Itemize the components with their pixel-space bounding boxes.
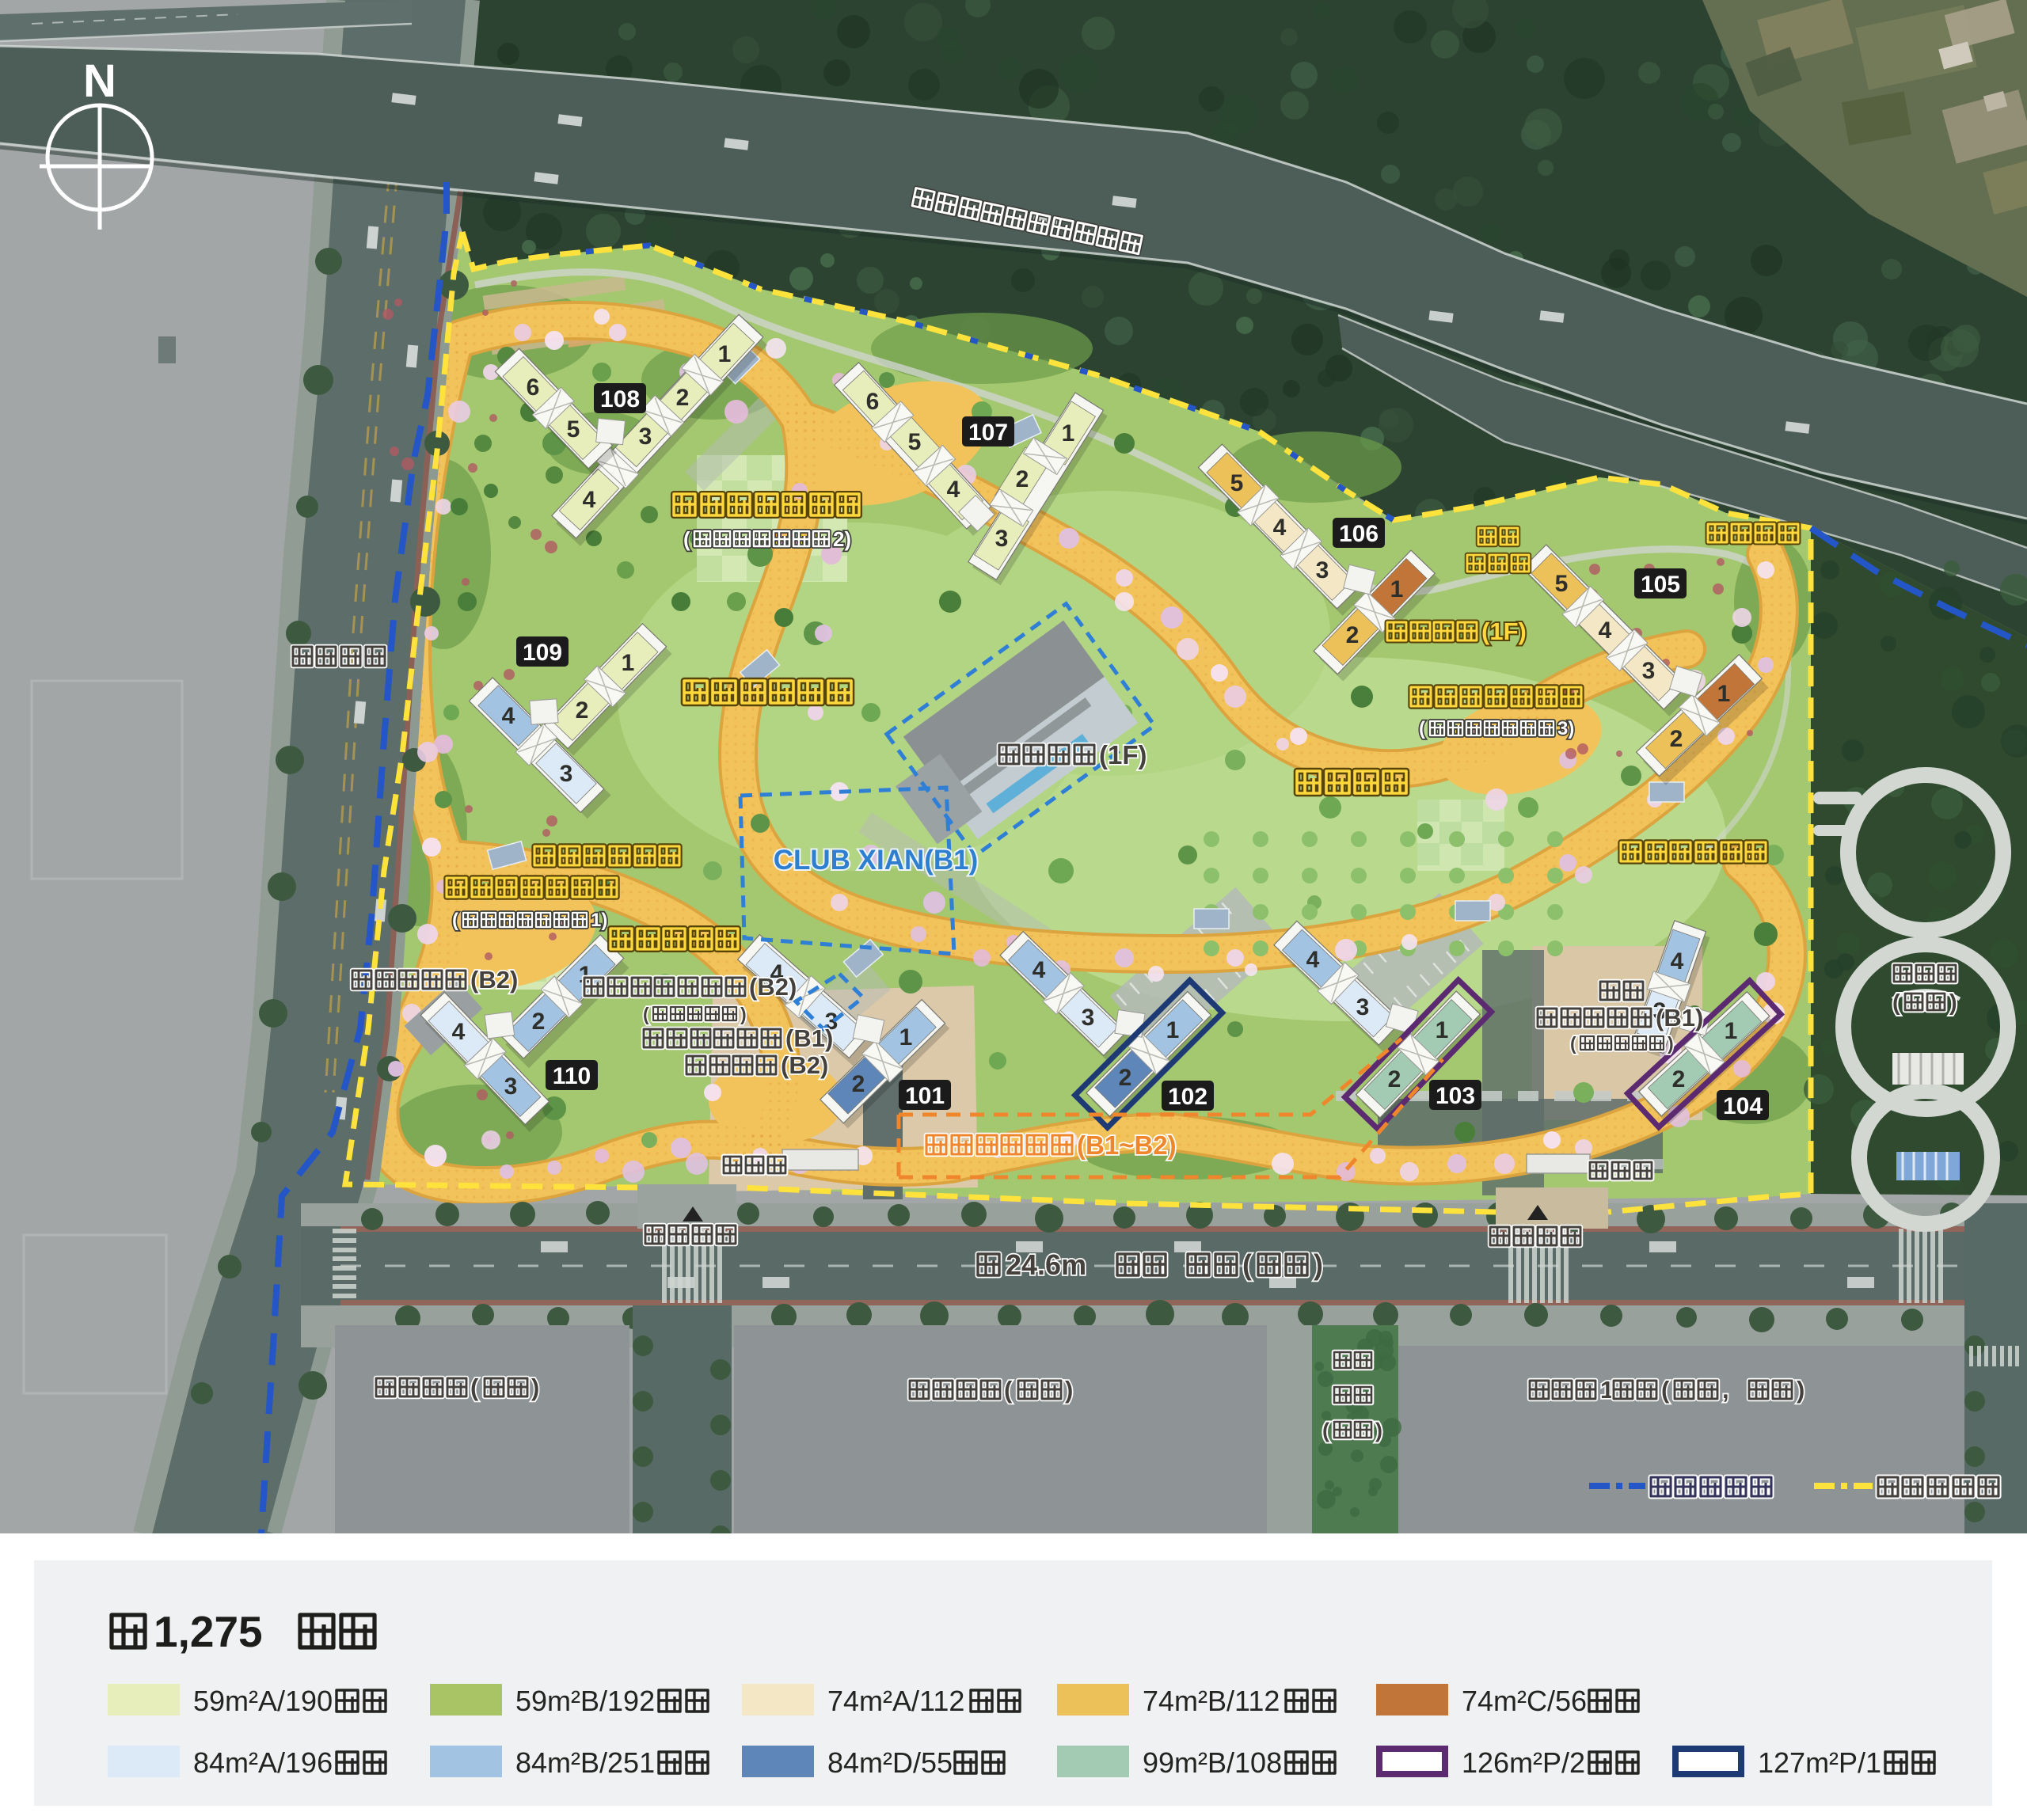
svg-text:84m²A/196: 84m²A/196 [193, 1746, 333, 1779]
svg-text:4: 4 [502, 703, 515, 729]
svg-text:3): 3) [1557, 718, 1574, 739]
svg-text:1: 1 [1166, 1017, 1180, 1043]
svg-text:3: 3 [1316, 557, 1329, 583]
svg-text:): ) [1314, 1248, 1323, 1281]
svg-text:2: 2 [1119, 1065, 1132, 1091]
svg-text:104: 104 [1723, 1093, 1763, 1119]
svg-text:3: 3 [639, 424, 652, 450]
svg-text:(: ( [1322, 1419, 1329, 1442]
svg-text:): ) [1065, 1376, 1073, 1404]
svg-text:59m²A/190: 59m²A/190 [193, 1685, 333, 1717]
svg-text:99m²B/108: 99m²B/108 [1143, 1746, 1282, 1779]
svg-text:(: ( [683, 527, 690, 551]
svg-text:127m²P/1: 127m²P/1 [1758, 1746, 1881, 1779]
svg-text:2: 2 [1016, 466, 1029, 492]
svg-text:4: 4 [1599, 617, 1612, 644]
svg-text:(B2): (B2) [781, 1051, 828, 1079]
svg-text:103: 103 [1436, 1083, 1475, 1109]
svg-text:N: N [83, 55, 116, 107]
svg-text:(B1): (B1) [1656, 1004, 1703, 1032]
svg-text:3: 3 [1082, 1005, 1095, 1031]
svg-text:(1F): (1F) [1481, 617, 1527, 645]
svg-text:): ) [740, 1004, 747, 1024]
svg-text:110: 110 [553, 1063, 591, 1089]
svg-text:4: 4 [583, 487, 596, 513]
svg-text:3: 3 [1356, 994, 1370, 1020]
svg-text:4: 4 [1671, 948, 1684, 975]
svg-text:(B1): (B1) [785, 1024, 833, 1052]
svg-text:(: ( [452, 910, 458, 931]
svg-text:74m²A/112: 74m²A/112 [827, 1685, 964, 1717]
svg-text:6: 6 [527, 374, 540, 401]
svg-text:1: 1 [1725, 1018, 1738, 1044]
svg-text:1,275: 1,275 [154, 1607, 263, 1656]
svg-text:(: ( [1661, 1376, 1670, 1404]
svg-text:): ) [1375, 1419, 1382, 1442]
svg-text:84m²D/55: 84m²D/55 [827, 1746, 953, 1779]
svg-text:1: 1 [899, 1024, 913, 1051]
svg-text:): ) [1797, 1376, 1805, 1404]
svg-text:(: ( [1004, 1376, 1013, 1404]
svg-text:108: 108 [600, 386, 640, 412]
svg-text:2: 2 [1672, 1066, 1686, 1092]
svg-text:(B1~B2): (B1~B2) [1077, 1130, 1177, 1160]
svg-text:3: 3 [995, 526, 1009, 552]
svg-text:1: 1 [1436, 1017, 1449, 1043]
svg-text:105: 105 [1641, 572, 1680, 598]
svg-text:CLUB XIAN(B1): CLUB XIAN(B1) [774, 845, 979, 876]
svg-text:): ) [531, 1374, 539, 1401]
svg-text:,: , [1722, 1376, 1729, 1404]
svg-text:1: 1 [718, 341, 732, 367]
svg-text:74m²C/56: 74m²C/56 [1462, 1685, 1587, 1717]
svg-text:(: ( [470, 1374, 479, 1401]
svg-text:101: 101 [905, 1083, 945, 1109]
svg-text:1: 1 [1390, 576, 1404, 602]
svg-text:4: 4 [1273, 515, 1287, 541]
svg-text:6: 6 [866, 389, 880, 415]
svg-text:5: 5 [908, 429, 922, 455]
svg-text:126m²P/2: 126m²P/2 [1462, 1746, 1585, 1779]
svg-text:3: 3 [560, 761, 573, 787]
svg-text:24.6m: 24.6m [1006, 1248, 1086, 1281]
svg-text:2: 2 [1670, 726, 1683, 752]
svg-text:1: 1 [1062, 420, 1075, 446]
svg-text:1: 1 [622, 650, 635, 676]
svg-text:1: 1 [1717, 681, 1731, 707]
svg-text:2: 2 [1346, 622, 1360, 648]
svg-text:(: ( [643, 1004, 649, 1024]
svg-text:4: 4 [1033, 957, 1046, 983]
svg-text:2): 2) [833, 527, 851, 551]
svg-text:5: 5 [567, 416, 580, 443]
svg-text:2: 2 [676, 385, 690, 411]
svg-text:4: 4 [452, 1019, 466, 1045]
svg-text:84m²B/251: 84m²B/251 [515, 1746, 655, 1779]
svg-text:109: 109 [523, 640, 562, 666]
svg-text:4: 4 [1306, 947, 1320, 973]
svg-text:5: 5 [1555, 571, 1569, 597]
svg-text:74m²B/112: 74m²B/112 [1143, 1685, 1280, 1717]
svg-text:2: 2 [852, 1071, 865, 1097]
svg-text:2: 2 [532, 1009, 546, 1035]
svg-text:5: 5 [1230, 470, 1244, 496]
svg-text:): ) [1949, 990, 1957, 1016]
svg-text:2: 2 [576, 697, 589, 724]
svg-text:(1F): (1F) [1099, 740, 1147, 769]
svg-text:(: ( [1570, 1033, 1576, 1054]
svg-text:107: 107 [968, 420, 1008, 446]
svg-text:2: 2 [1388, 1066, 1401, 1092]
svg-text:(: ( [1892, 990, 1900, 1016]
svg-text:59m²B/192: 59m²B/192 [515, 1685, 655, 1717]
svg-text:3: 3 [1642, 658, 1656, 684]
svg-text:1): 1) [591, 910, 607, 931]
svg-text:4: 4 [947, 477, 960, 503]
svg-text:(B2): (B2) [470, 966, 518, 994]
svg-text:(: ( [1242, 1248, 1252, 1281]
svg-text:(B2): (B2) [749, 973, 797, 1001]
svg-text:102: 102 [1168, 1084, 1207, 1110]
svg-text:106: 106 [1339, 521, 1379, 547]
svg-text:3: 3 [504, 1073, 518, 1100]
svg-text:): ) [1668, 1033, 1674, 1054]
svg-text:(: ( [1419, 718, 1425, 739]
